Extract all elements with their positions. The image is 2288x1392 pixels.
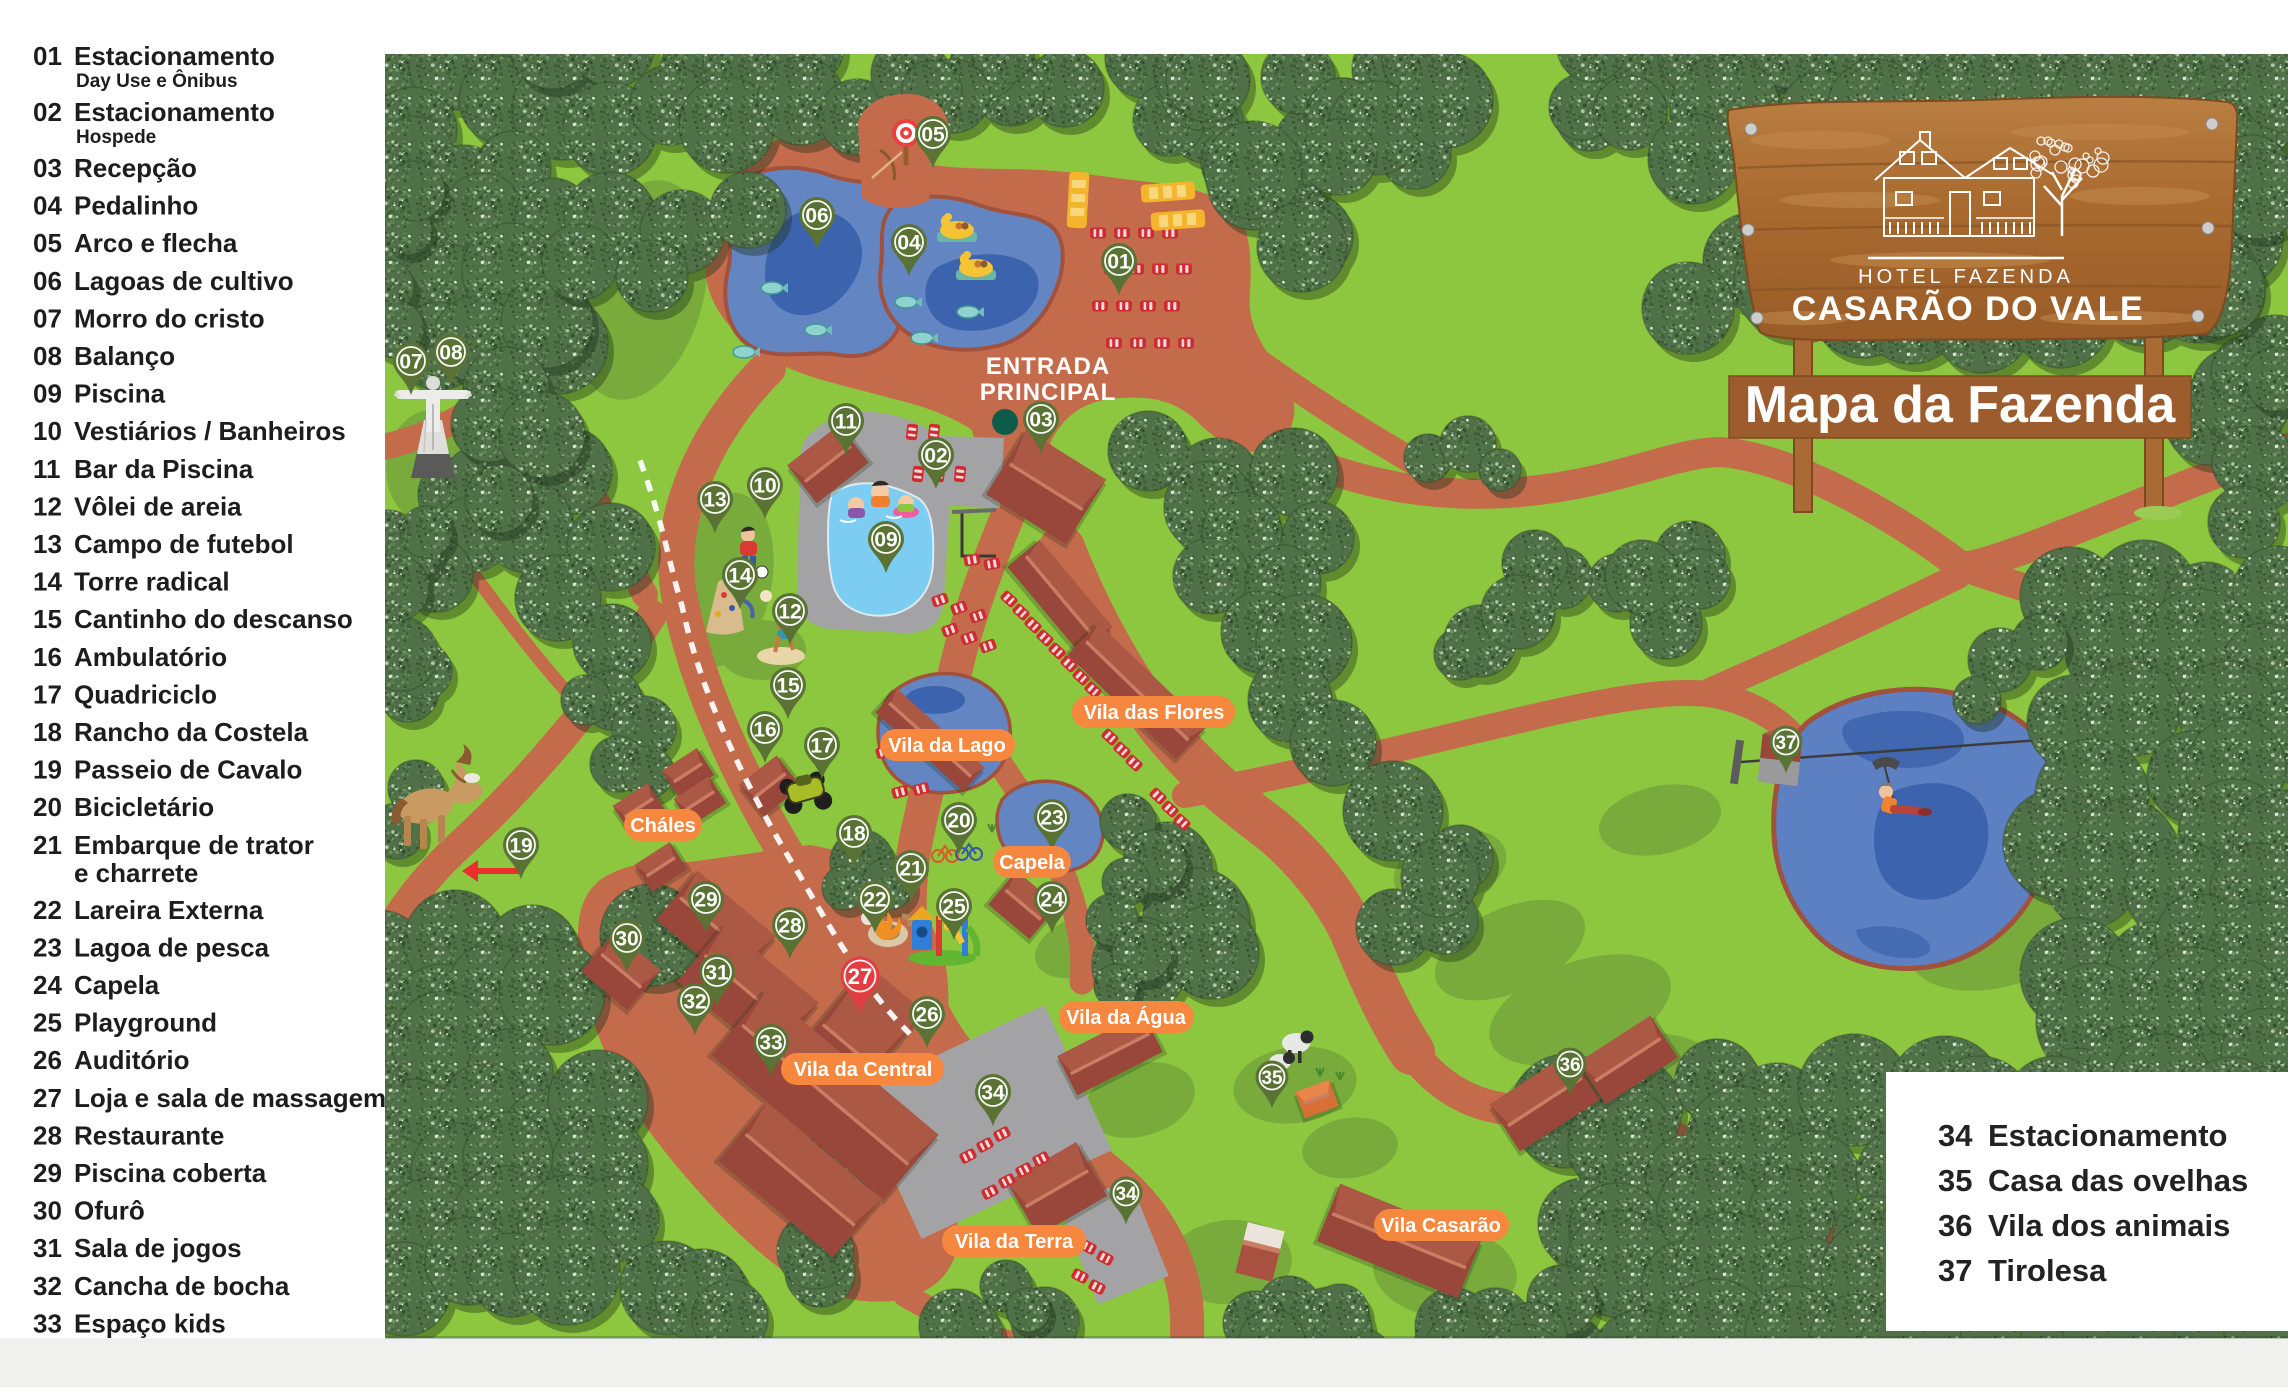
svg-text:14: 14 <box>728 564 752 587</box>
svg-text:Morro do cristo: Morro do cristo <box>74 303 265 333</box>
svg-text:Capela: Capela <box>999 852 1065 874</box>
svg-text:Bicicletário: Bicicletário <box>74 792 214 822</box>
svg-text:28: 28 <box>778 914 802 937</box>
svg-text:04: 04 <box>897 231 921 254</box>
svg-text:07: 07 <box>33 303 62 333</box>
svg-text:Vila da Central: Vila da Central <box>794 1059 933 1081</box>
svg-text:Casa das ovelhas: Casa das ovelhas <box>1988 1163 2248 1198</box>
svg-text:Bar da Piscina: Bar da Piscina <box>74 454 254 484</box>
svg-text:34: 34 <box>1938 1118 1973 1153</box>
svg-text:Loja e sala de massagem: Loja e sala de massagem <box>74 1083 386 1113</box>
svg-text:Day Use e Ônibus: Day Use e Ônibus <box>76 70 238 92</box>
svg-text:Recepção: Recepção <box>74 153 197 183</box>
svg-text:29: 29 <box>694 888 717 911</box>
svg-text:22: 22 <box>33 895 62 925</box>
svg-text:10: 10 <box>753 474 776 497</box>
svg-text:Vila da Terra: Vila da Terra <box>955 1231 1074 1253</box>
svg-text:11: 11 <box>33 454 61 484</box>
svg-text:Estacionamento: Estacionamento <box>74 41 275 71</box>
svg-text:04: 04 <box>33 191 62 221</box>
svg-text:12: 12 <box>778 600 801 623</box>
svg-text:Restaurante: Restaurante <box>74 1120 224 1150</box>
svg-text:24: 24 <box>33 970 62 1000</box>
svg-text:Vôlei de areia: Vôlei de areia <box>74 491 242 521</box>
svg-text:07: 07 <box>399 350 422 373</box>
svg-text:Cantinho do descanso: Cantinho do descanso <box>74 604 353 634</box>
svg-text:Tirolesa: Tirolesa <box>1988 1253 2107 1288</box>
svg-text:Cháles: Cháles <box>630 815 696 837</box>
svg-text:Quadriciclo: Quadriciclo <box>74 679 217 709</box>
svg-text:23: 23 <box>1040 806 1063 829</box>
svg-text:Vila Casarão: Vila Casarão <box>1381 1215 1501 1237</box>
svg-text:20: 20 <box>33 792 62 822</box>
svg-text:09: 09 <box>33 379 62 409</box>
svg-text:Lareira Externa: Lareira Externa <box>74 895 264 925</box>
svg-text:03: 03 <box>1029 408 1052 431</box>
svg-text:35: 35 <box>1261 1068 1283 1089</box>
svg-text:Espaço kids: Espaço kids <box>74 1308 226 1338</box>
svg-text:02: 02 <box>924 444 947 467</box>
svg-text:26: 26 <box>33 1045 62 1075</box>
svg-text:17: 17 <box>810 734 833 757</box>
svg-text:36: 36 <box>1559 1055 1580 1076</box>
svg-text:28: 28 <box>33 1120 62 1150</box>
svg-text:31: 31 <box>33 1233 62 1263</box>
svg-text:Arco e flecha: Arco e flecha <box>74 228 238 258</box>
svg-text:18: 18 <box>842 822 866 845</box>
svg-text:Lagoa de pesca: Lagoa de pesca <box>74 932 270 962</box>
svg-text:05: 05 <box>921 123 945 146</box>
svg-text:29: 29 <box>33 1158 62 1188</box>
svg-text:Auditório: Auditório <box>74 1045 190 1075</box>
svg-text:Vestiários / Banheiros: Vestiários / Banheiros <box>74 416 346 446</box>
svg-text:Ofurô: Ofurô <box>74 1196 145 1226</box>
svg-text:10: 10 <box>33 416 62 446</box>
svg-text:13: 13 <box>703 488 726 511</box>
svg-text:05: 05 <box>33 228 62 258</box>
svg-text:Estacionamento: Estacionamento <box>1988 1118 2227 1153</box>
svg-text:Balanço: Balanço <box>74 341 175 371</box>
svg-text:06: 06 <box>33 266 62 296</box>
svg-text:08: 08 <box>439 341 463 364</box>
svg-text:37: 37 <box>1775 733 1796 754</box>
svg-text:ENTRADA: ENTRADA <box>986 353 1110 380</box>
svg-text:31: 31 <box>705 961 729 984</box>
svg-text:Lagoas de cultivo: Lagoas de cultivo <box>74 266 294 296</box>
svg-text:13: 13 <box>33 529 62 559</box>
svg-text:Ambulatório: Ambulatório <box>74 642 227 672</box>
svg-text:01: 01 <box>1107 250 1131 273</box>
svg-text:15: 15 <box>776 674 800 697</box>
svg-text:Hospede: Hospede <box>76 127 156 148</box>
svg-text:21: 21 <box>33 830 62 860</box>
svg-text:06: 06 <box>805 204 828 227</box>
svg-text:25: 25 <box>33 1008 62 1038</box>
svg-text:26: 26 <box>915 1003 938 1026</box>
svg-text:24: 24 <box>1040 888 1064 911</box>
svg-text:Vila dos animais: Vila dos animais <box>1988 1208 2230 1243</box>
svg-text:08: 08 <box>33 341 62 371</box>
svg-text:Campo de futebol: Campo de futebol <box>74 529 294 559</box>
svg-text:16: 16 <box>33 642 62 672</box>
svg-text:02: 02 <box>33 97 62 127</box>
svg-text:Mapa da Fazenda: Mapa da Fazenda <box>1745 376 2177 434</box>
svg-text:Pedalinho: Pedalinho <box>74 191 198 221</box>
svg-text:Sala de jogos: Sala de jogos <box>74 1233 242 1263</box>
svg-text:20: 20 <box>947 809 970 832</box>
svg-text:36: 36 <box>1938 1208 1972 1243</box>
svg-text:Piscina coberta: Piscina coberta <box>74 1158 267 1188</box>
svg-text:27: 27 <box>33 1083 62 1113</box>
svg-text:01: 01 <box>33 41 62 71</box>
svg-text:32: 32 <box>683 990 706 1013</box>
svg-text:27: 27 <box>848 964 872 989</box>
svg-text:Rancho da Costela: Rancho da Costela <box>74 717 309 747</box>
svg-text:11: 11 <box>835 410 858 433</box>
svg-text:33: 33 <box>33 1308 62 1338</box>
svg-text:03: 03 <box>33 153 62 183</box>
svg-text:Capela: Capela <box>74 970 160 1000</box>
svg-text:e charrete: e charrete <box>74 858 198 888</box>
svg-text:35: 35 <box>1938 1163 1972 1198</box>
svg-text:HOTEL FAZENDA: HOTEL FAZENDA <box>1858 266 2074 288</box>
svg-text:23: 23 <box>33 932 62 962</box>
svg-text:30: 30 <box>615 927 638 950</box>
svg-text:33: 33 <box>759 1031 782 1054</box>
svg-text:Playground: Playground <box>74 1008 217 1038</box>
svg-text:15: 15 <box>33 604 62 634</box>
svg-text:22: 22 <box>863 888 886 911</box>
svg-text:Embarque de trator: Embarque de trator <box>74 830 314 860</box>
svg-text:37: 37 <box>1938 1253 1972 1288</box>
svg-text:Vila da Lago: Vila da Lago <box>888 735 1005 757</box>
svg-text:Torre radical: Torre radical <box>74 567 230 597</box>
svg-text:CASARÃO DO VALE: CASARÃO DO VALE <box>1792 290 2144 328</box>
svg-text:PRINCIPAL: PRINCIPAL <box>980 379 1117 406</box>
svg-text:32: 32 <box>33 1271 62 1301</box>
svg-text:Passeio de Cavalo: Passeio de Cavalo <box>74 755 302 785</box>
svg-text:Piscina: Piscina <box>74 379 166 409</box>
svg-text:30: 30 <box>33 1196 62 1226</box>
svg-text:Estacionamento: Estacionamento <box>74 97 275 127</box>
svg-text:17: 17 <box>33 679 62 709</box>
svg-text:19: 19 <box>33 755 62 785</box>
svg-text:18: 18 <box>33 717 62 747</box>
svg-text:09: 09 <box>874 528 897 551</box>
svg-text:19: 19 <box>509 834 532 857</box>
svg-text:12: 12 <box>33 491 62 521</box>
svg-text:25: 25 <box>942 895 966 918</box>
svg-text:Vila da Água: Vila da Água <box>1066 1006 1187 1029</box>
svg-text:34: 34 <box>981 1081 1005 1104</box>
svg-text:Cancha de bocha: Cancha de bocha <box>74 1271 290 1301</box>
svg-text:Vila das Flores: Vila das Flores <box>1084 702 1225 724</box>
svg-text:16: 16 <box>753 718 776 741</box>
svg-text:21: 21 <box>899 857 923 880</box>
svg-text:34: 34 <box>1115 1184 1137 1205</box>
svg-text:14: 14 <box>33 567 62 597</box>
